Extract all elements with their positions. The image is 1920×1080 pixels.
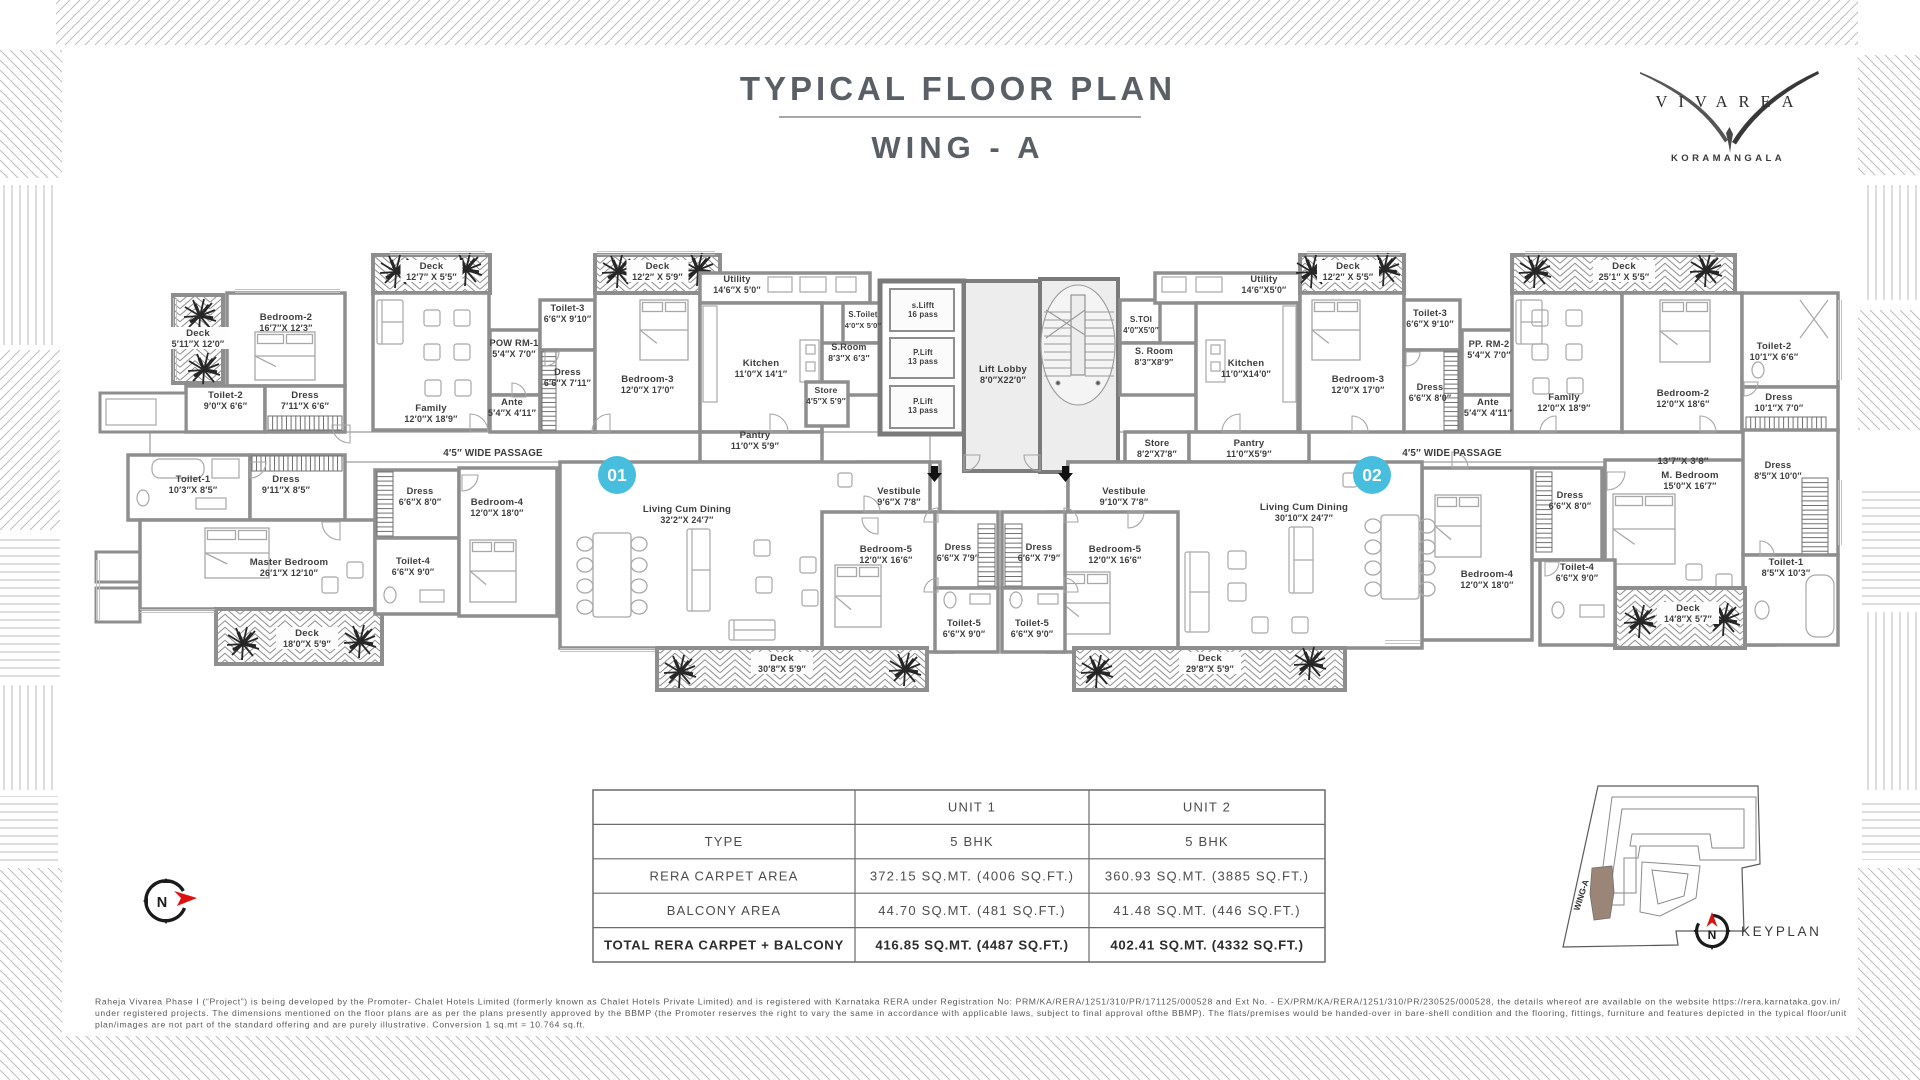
svg-text:Utility: Utility [723, 274, 751, 284]
svg-text:Toilet-5: Toilet-5 [1015, 618, 1049, 628]
svg-text:UNIT 1: UNIT 1 [948, 800, 996, 815]
svg-text:N: N [1708, 928, 1717, 942]
svg-text:Ante: Ante [1477, 397, 1499, 408]
svg-text:8′3″X 6′3″: 8′3″X 6′3″ [828, 353, 870, 363]
svg-text:6′6″X 9′0″: 6′6″X 9′0″ [1011, 629, 1054, 639]
svg-text:S.Room: S.Room [831, 342, 866, 352]
svg-text:6′6″X 9′10″: 6′6″X 9′10″ [544, 314, 592, 324]
svg-text:8′3″X8′9″: 8′3″X8′9″ [1134, 357, 1173, 367]
svg-text:Deck: Deck [295, 628, 319, 639]
svg-text:TYPE: TYPE [705, 834, 744, 849]
svg-text:16′7″X 12′3″: 16′7″X 12′3″ [259, 323, 313, 333]
svg-text:Master Bedroom: Master Bedroom [250, 557, 329, 568]
svg-text:5′4″X 7′0″: 5′4″X 7′0″ [1467, 350, 1511, 360]
svg-text:POW RM-1: POW RM-1 [489, 338, 538, 348]
svg-text:6′6″X 7′9″: 6′6″X 7′9″ [1018, 553, 1061, 563]
svg-text:5′4″X 7′0″: 5′4″X 7′0″ [492, 349, 536, 359]
svg-text:VIVAREA: VIVAREA [1655, 92, 1804, 111]
svg-text:360.93 SQ.MT. (3885 SQ.FT.): 360.93 SQ.MT. (3885 SQ.FT.) [1105, 869, 1309, 884]
svg-text:12′7″ X 5′5″: 12′7″ X 5′5″ [406, 272, 457, 282]
svg-text:13 pass: 13 pass [908, 357, 938, 366]
svg-text:6′6″X 9′0″: 6′6″X 9′0″ [943, 629, 986, 639]
svg-text:402.41 SQ.MT. (4332 SQ.FT.): 402.41 SQ.MT. (4332 SQ.FT.) [1110, 937, 1303, 952]
svg-text:14′6″X 5′0″: 14′6″X 5′0″ [713, 285, 761, 295]
svg-text:Dress: Dress [1557, 490, 1584, 500]
svg-text:6′6″X 8′0″: 6′6″X 8′0″ [1549, 501, 1592, 511]
svg-text:13′7″X 3′8″: 13′7″X 3′8″ [1657, 456, 1708, 467]
svg-text:8′2″X7′8″: 8′2″X7′8″ [1137, 449, 1177, 459]
svg-text:12′0″X 18′6″: 12′0″X 18′6″ [1656, 399, 1710, 409]
svg-text:Toilet-1: Toilet-1 [1769, 557, 1804, 568]
svg-text:15′0″X 16′7″: 15′0″X 16′7″ [1663, 481, 1717, 491]
svg-text:18′0″X 5′9″: 18′0″X 5′9″ [283, 639, 332, 649]
svg-text:01: 01 [607, 465, 627, 485]
svg-text:372.15 SQ.MT. (4006 SQ.FT.): 372.15 SQ.MT. (4006 SQ.FT.) [870, 869, 1074, 884]
svg-text:11′0″X 14′1″: 11′0″X 14′1″ [735, 369, 788, 379]
svg-text:12′2″ X 5′9″: 12′2″ X 5′9″ [632, 272, 683, 282]
svg-text:Dress: Dress [1765, 392, 1792, 403]
svg-text:Vestibule: Vestibule [1102, 486, 1146, 497]
svg-text:KEYPLAN: KEYPLAN [1741, 924, 1821, 939]
svg-text:Lift Lobby: Lift Lobby [979, 364, 1027, 375]
svg-text:P.Lift: P.Lift [913, 348, 933, 357]
svg-text:12′0″X 18′9″: 12′0″X 18′9″ [1537, 403, 1591, 413]
svg-text:12′0″X 18′0″: 12′0″X 18′0″ [470, 508, 524, 518]
svg-text:Kitchen: Kitchen [743, 358, 780, 369]
svg-text:8′5″X 10′0″: 8′5″X 10′0″ [1754, 471, 1802, 481]
svg-text:Raheja Vivarea Phase I (“Proje: Raheja Vivarea Phase I (“Project”) is be… [95, 997, 1840, 1007]
svg-text:26′1″X 12′10″: 26′1″X 12′10″ [260, 568, 319, 578]
svg-text:10′1″X 7′0″: 10′1″X 7′0″ [1755, 403, 1804, 413]
svg-text:Dress: Dress [1026, 542, 1053, 552]
svg-text:Bedroom-2: Bedroom-2 [260, 312, 312, 323]
svg-text:Family: Family [1548, 392, 1580, 403]
svg-text:9′6″X 7′8″: 9′6″X 7′8″ [877, 497, 921, 507]
svg-text:Dress: Dress [1765, 460, 1792, 470]
svg-text:S.Toilet: S.Toilet [848, 310, 877, 319]
svg-text:Bedroom-3: Bedroom-3 [621, 374, 673, 385]
svg-text:11′0″X5′9″: 11′0″X5′9″ [1226, 449, 1272, 459]
svg-text:Toilet-3: Toilet-3 [1413, 308, 1447, 318]
svg-text:Store: Store [1145, 438, 1170, 448]
svg-text:Store: Store [815, 385, 838, 395]
svg-text:N: N [157, 895, 167, 911]
svg-text:s.Lifft: s.Lifft [912, 301, 935, 310]
svg-text:Vestibule: Vestibule [877, 486, 921, 497]
svg-text:4′5″ WIDE PASSAGE: 4′5″ WIDE PASSAGE [1402, 448, 1502, 459]
svg-text:Toilet-2: Toilet-2 [208, 390, 243, 401]
svg-text:6′6″X 8′0″: 6′6″X 8′0″ [399, 497, 442, 507]
svg-text:14′8″X 5′7″: 14′8″X 5′7″ [1664, 614, 1713, 624]
svg-text:plan/images are not part of th: plan/images are not part of the standard… [95, 1020, 586, 1030]
svg-text:Living Cum Dining: Living Cum Dining [643, 504, 731, 515]
svg-text:12′0″X 18′0″: 12′0″X 18′0″ [1460, 580, 1514, 590]
svg-text:Living Cum Dining: Living Cum Dining [1260, 502, 1348, 513]
svg-text:25′1″ X 5′5″: 25′1″ X 5′5″ [1599, 272, 1650, 282]
svg-text:Kitchen: Kitchen [1228, 358, 1265, 369]
svg-text:5′4″X 4′11″: 5′4″X 4′11″ [1464, 408, 1513, 418]
svg-text:30′8″X 5′9″: 30′8″X 5′9″ [758, 664, 807, 674]
svg-text:P.Lift: P.Lift [913, 397, 933, 406]
svg-text:6′6″X 9′0″: 6′6″X 9′0″ [392, 567, 435, 577]
svg-text:6′6″X 7′11″: 6′6″X 7′11″ [544, 378, 592, 388]
svg-text:11′0″X14′0″: 11′0″X14′0″ [1221, 369, 1272, 379]
svg-text:Deck: Deck [1676, 603, 1700, 614]
svg-text:Dress: Dress [272, 474, 299, 485]
svg-text:Bedroom-4: Bedroom-4 [471, 497, 524, 508]
svg-text:Toilet-2: Toilet-2 [1757, 341, 1792, 352]
svg-text:30′10″X 24′7″: 30′10″X 24′7″ [1275, 513, 1334, 523]
svg-text:4′0″X 5′0″: 4′0″X 5′0″ [845, 321, 882, 330]
svg-text:9′0″X 6′6″: 9′0″X 6′6″ [204, 401, 248, 411]
svg-text:under registered projects. The: under registered projects. The dimension… [95, 1008, 1847, 1018]
svg-text:8′0″X22′0″: 8′0″X22′0″ [980, 375, 1026, 385]
svg-text:6′6″X 9′10″: 6′6″X 9′10″ [1406, 319, 1454, 329]
svg-text:Toilet-4: Toilet-4 [1560, 562, 1595, 572]
svg-text:12′0″X 17′0″: 12′0″X 17′0″ [1331, 385, 1385, 395]
svg-text:416.85 SQ.MT. (4487 SQ.FT.): 416.85 SQ.MT. (4487 SQ.FT.) [875, 937, 1068, 952]
svg-text:41.48 SQ.MT. (446 SQ.FT.): 41.48 SQ.MT. (446 SQ.FT.) [1113, 903, 1301, 918]
svg-text:Pantry: Pantry [740, 430, 771, 441]
svg-text:16 pass: 16 pass [908, 310, 938, 319]
svg-text:TOTAL RERA CARPET + BALCONY: TOTAL RERA CARPET + BALCONY [604, 937, 844, 952]
svg-text:Family: Family [415, 403, 447, 414]
svg-text:5′4″X 4′11″: 5′4″X 4′11″ [488, 408, 537, 418]
svg-text:Bedroom-3: Bedroom-3 [1332, 374, 1384, 385]
svg-text:6′6″X 9′0″: 6′6″X 9′0″ [1556, 573, 1599, 583]
svg-text:UNIT 2: UNIT 2 [1183, 800, 1231, 815]
svg-text:5 BHK: 5 BHK [1185, 834, 1229, 849]
svg-text:Dress: Dress [945, 542, 972, 552]
svg-text:Deck: Deck [186, 328, 210, 339]
svg-text:11′0″X 5′9″: 11′0″X 5′9″ [731, 441, 780, 451]
svg-text:7′11″X 6′6″: 7′11″X 6′6″ [281, 401, 330, 411]
svg-text:Utility: Utility [1250, 274, 1278, 284]
svg-text:Bedroom-5: Bedroom-5 [1089, 544, 1142, 555]
svg-text:13 pass: 13 pass [908, 406, 938, 415]
svg-text:Deck: Deck [1336, 261, 1360, 272]
svg-text:Toilet-3: Toilet-3 [551, 303, 585, 313]
svg-text:Dress: Dress [554, 367, 581, 377]
svg-text:Deck: Deck [420, 261, 444, 272]
svg-text:32′2″X 24′7″: 32′2″X 24′7″ [660, 515, 714, 525]
svg-text:12′0″X 17′0″: 12′0″X 17′0″ [621, 385, 675, 395]
svg-text:TYPICAL FLOOR PLAN: TYPICAL FLOOR PLAN [740, 70, 1176, 107]
svg-text:Deck: Deck [770, 653, 794, 664]
svg-text:Dress: Dress [291, 390, 318, 401]
svg-text:12′0″X 18′9″: 12′0″X 18′9″ [404, 414, 458, 424]
svg-text:12′2″ X 5′5″: 12′2″ X 5′5″ [1323, 272, 1374, 282]
svg-text:BALCONY AREA: BALCONY AREA [667, 903, 782, 918]
svg-text:WING - A: WING - A [871, 130, 1044, 165]
svg-text:Deck: Deck [1198, 653, 1222, 664]
svg-text:Deck: Deck [1612, 261, 1636, 272]
svg-text:12′0″X 16′6″: 12′0″X 16′6″ [1088, 555, 1142, 565]
svg-text:Toilet-4: Toilet-4 [396, 556, 431, 566]
svg-text:Bedroom-5: Bedroom-5 [860, 544, 913, 555]
svg-text:Deck: Deck [646, 261, 670, 272]
svg-text:Bedroom-4: Bedroom-4 [1461, 569, 1514, 580]
svg-text:5′11″X 12′0″: 5′11″X 12′0″ [172, 339, 225, 349]
svg-text:12′0″X 16′6″: 12′0″X 16′6″ [859, 555, 913, 565]
svg-text:S. Room: S. Room [1135, 346, 1173, 356]
svg-text:8′5″X 10′3″: 8′5″X 10′3″ [1762, 568, 1811, 578]
svg-text:6′6″X 7′9″: 6′6″X 7′9″ [937, 553, 980, 563]
svg-text:4′5″ WIDE PASSAGE: 4′5″ WIDE PASSAGE [443, 448, 543, 459]
svg-text:S.TOI: S.TOI [1130, 315, 1152, 324]
svg-text:14′6″X5′0″: 14′6″X5′0″ [1242, 285, 1288, 295]
svg-text:44.70 SQ.MT. (481 SQ.FT.): 44.70 SQ.MT. (481 SQ.FT.) [878, 903, 1066, 918]
svg-text:4′0″X5′0″: 4′0″X5′0″ [1123, 326, 1159, 335]
svg-text:RERA CARPET AREA: RERA CARPET AREA [649, 869, 798, 884]
svg-text:M. Bedroom: M. Bedroom [1661, 470, 1718, 481]
svg-text:5 BHK: 5 BHK [950, 834, 994, 849]
svg-text:Toilet-1: Toilet-1 [176, 474, 211, 485]
svg-text:KORAMANGALA: KORAMANGALA [1671, 153, 1785, 164]
svg-text:6′6″X 8′0″: 6′6″X 8′0″ [1409, 393, 1452, 403]
svg-text:29′8″X 5′9″: 29′8″X 5′9″ [1186, 664, 1235, 674]
svg-text:Pantry: Pantry [1234, 438, 1265, 449]
svg-text:10′3″X 8′5″: 10′3″X 8′5″ [169, 485, 218, 495]
svg-text:Dress: Dress [1417, 382, 1444, 392]
svg-text:9′10″X 7′8″: 9′10″X 7′8″ [1100, 497, 1149, 507]
svg-text:Toilet-5: Toilet-5 [947, 618, 981, 628]
svg-text:Bedroom-2: Bedroom-2 [1657, 388, 1709, 399]
svg-text:10′1″X 6′6″: 10′1″X 6′6″ [1750, 352, 1799, 362]
svg-text:4′5″X 5′9″: 4′5″X 5′9″ [806, 397, 846, 406]
svg-text:Dress: Dress [407, 486, 434, 496]
svg-text:9′11″X 8′5″: 9′11″X 8′5″ [262, 485, 311, 495]
svg-text:02: 02 [1362, 465, 1382, 485]
svg-text:Ante: Ante [501, 397, 523, 408]
svg-text:PP. RM-2: PP. RM-2 [1469, 339, 1510, 349]
